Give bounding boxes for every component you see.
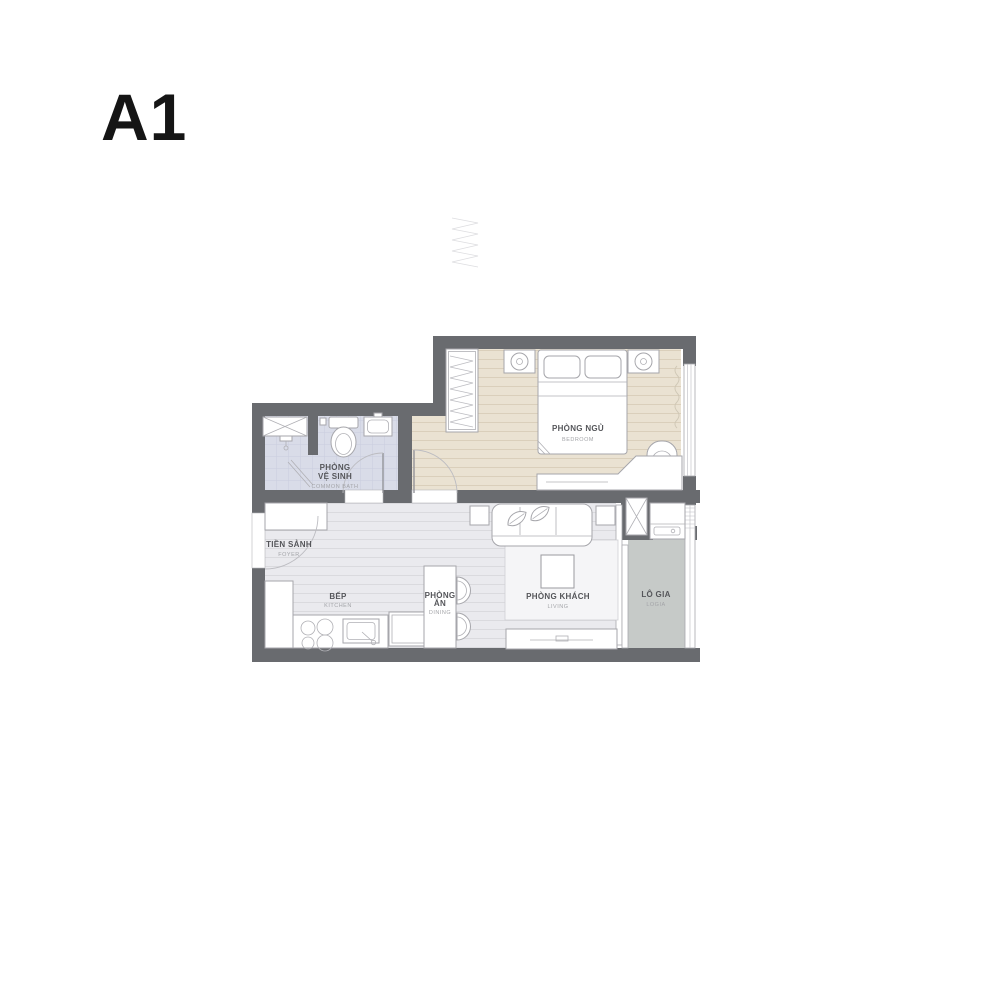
kitchen-sink-icon (343, 619, 379, 645)
floor-plan-drawing: PHÒNG NGỦ BEDROOM (0, 0, 1000, 1000)
kitchen-sublabel: KITCHEN (324, 603, 352, 609)
nightstand-lamp-icon (504, 350, 535, 373)
bathroom-label-line1: PHÒNG (320, 463, 351, 472)
washing-machine-icon (650, 503, 685, 539)
living-label: PHÒNG KHÁCH (526, 592, 590, 601)
side-table-icon (470, 506, 489, 525)
bathroom-sublabel: COMMON BATH (312, 484, 359, 490)
foyer-label: TIỀN SẢNH (266, 539, 312, 549)
floor-plan-page: A1 (0, 0, 1000, 1000)
kitchen-label: BẾP (329, 591, 347, 601)
dining-label-line2: ĂN (434, 599, 446, 608)
toilet-icon (329, 417, 358, 457)
logia-sublabel: LOGIA (646, 602, 665, 608)
bedroom-window-icon (684, 364, 695, 476)
tv-cabinet-icon (506, 629, 617, 649)
logia-railing-icon (685, 505, 695, 648)
living-sublabel: LIVING (547, 604, 568, 610)
coffee-table-icon (541, 555, 574, 588)
shower-tray-icon (263, 417, 307, 436)
dining-sublabel: DINING (429, 610, 451, 616)
bathroom-label-line2: VỆ SINH (318, 472, 352, 481)
fridge-icon (389, 612, 427, 646)
technical-shaft-icon (626, 498, 647, 535)
sofa-icon (492, 502, 592, 546)
bedroom-label: PHÒNG NGỦ (552, 424, 604, 433)
faint-hatch-artifact (452, 218, 478, 267)
kitchen-counter-icon (265, 581, 293, 648)
side-table-icon (596, 506, 615, 525)
nightstand-lamp-icon (628, 350, 659, 373)
logia-label: LÔ GIA (641, 590, 670, 599)
foyer-sublabel: FOYER (278, 552, 299, 558)
wardrobe-icon (446, 349, 478, 432)
bedroom-sublabel: BEDROOM (562, 437, 594, 443)
wall-accessory-icon (320, 418, 326, 425)
